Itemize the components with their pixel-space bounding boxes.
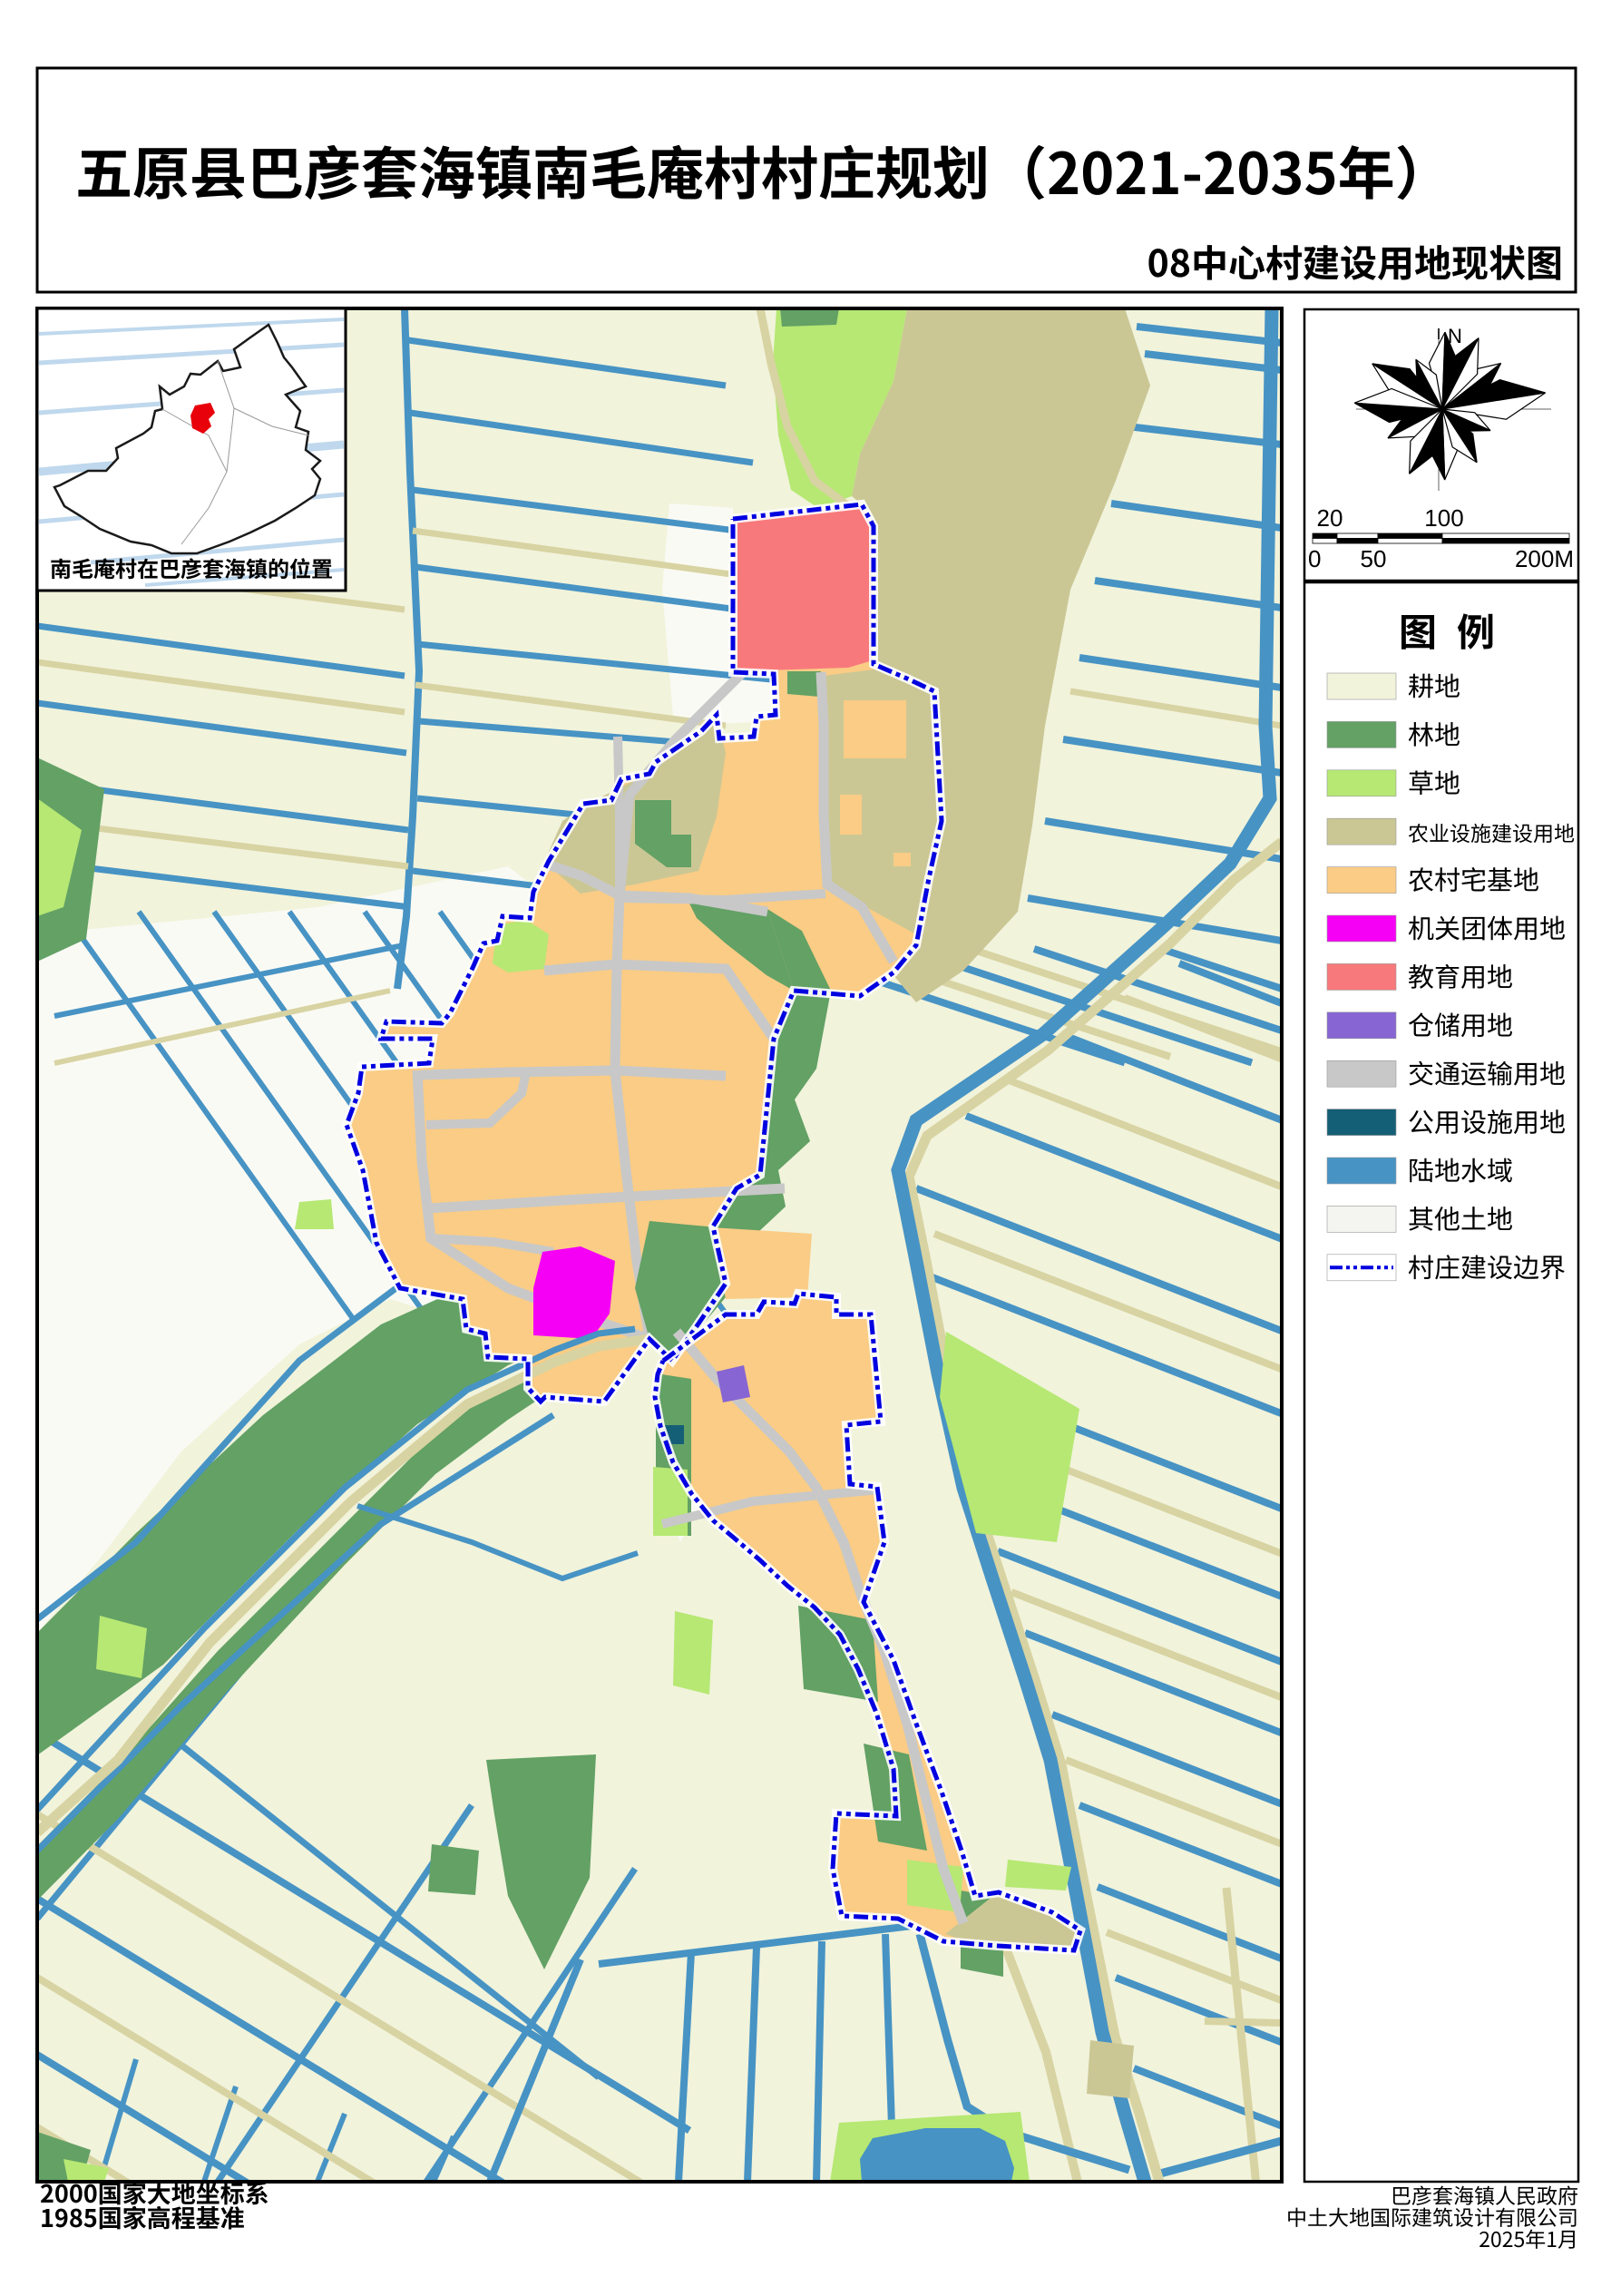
svg-text:20: 20 [1317,504,1343,532]
svg-text:50: 50 [1361,545,1387,572]
svg-text:100: 100 [1424,504,1463,532]
svg-text:0: 0 [1308,545,1321,572]
svg-text:N: N [1448,325,1462,347]
svg-text:200M: 200M [1515,545,1574,572]
